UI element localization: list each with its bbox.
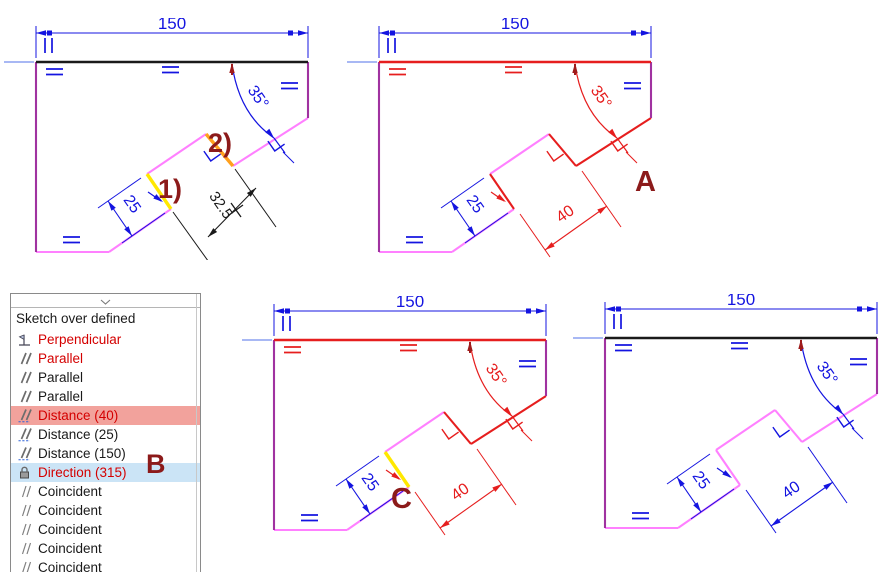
svg-text:25: 25 bbox=[689, 468, 713, 492]
svg-text:2): 2) bbox=[208, 128, 232, 158]
svg-text:35°: 35° bbox=[587, 83, 615, 113]
distance-icon bbox=[16, 408, 32, 423]
svg-text:40: 40 bbox=[448, 480, 472, 504]
constraint-row[interactable]: Coincident bbox=[11, 482, 200, 501]
svg-text:1): 1) bbox=[158, 174, 182, 204]
svg-text:35°: 35° bbox=[244, 83, 272, 113]
plate-outline[interactable] bbox=[36, 62, 308, 252]
constraint-label: Coincident bbox=[38, 503, 102, 518]
svg-text:40: 40 bbox=[779, 478, 803, 502]
plate-outline[interactable] bbox=[605, 338, 877, 528]
sketch-A-drawing: 15035°2540A bbox=[343, 18, 667, 260]
parallel-icon bbox=[16, 370, 32, 385]
svg-text:150: 150 bbox=[158, 18, 186, 33]
distance-icon bbox=[16, 446, 32, 461]
svg-text:150: 150 bbox=[501, 18, 529, 33]
parallel-icon bbox=[16, 351, 32, 366]
svg-text:25: 25 bbox=[358, 470, 382, 494]
constraint-label: Coincident bbox=[38, 541, 102, 556]
svg-text:150: 150 bbox=[727, 294, 755, 309]
constraint-label: Direction (315) bbox=[38, 465, 127, 480]
dimension-angle[interactable]: 35° bbox=[467, 341, 523, 431]
constraint-row[interactable]: Distance (40) bbox=[11, 406, 200, 425]
sketch-D-drawing: 15035°2540 bbox=[569, 294, 889, 536]
dimension-width[interactable]: 150 bbox=[605, 294, 877, 334]
constraint-list: PerpendicularParallelParallelParallelDis… bbox=[11, 330, 200, 572]
constraint-glyphs[interactable] bbox=[45, 38, 298, 243]
constraint-panel: Sketch over defined PerpendicularParalle… bbox=[10, 293, 201, 572]
callout-labels: A bbox=[635, 166, 656, 198]
constraint-glyphs[interactable] bbox=[614, 314, 867, 519]
dimension-width[interactable]: 150 bbox=[274, 296, 546, 336]
constraint-row[interactable]: Parallel bbox=[11, 349, 200, 368]
svg-text:A: A bbox=[635, 166, 656, 198]
svg-text:25: 25 bbox=[120, 192, 144, 216]
constraint-row[interactable]: Coincident bbox=[11, 501, 200, 520]
dimension-width[interactable]: 150 bbox=[379, 18, 651, 58]
constraint-row[interactable]: Distance (150) bbox=[11, 444, 200, 463]
callout-label-b: B bbox=[146, 449, 166, 480]
dimension-step[interactable]: 25 bbox=[667, 454, 734, 519]
svg-text:C: C bbox=[391, 483, 412, 515]
svg-text:150: 150 bbox=[396, 296, 424, 311]
perpendicular-icon bbox=[16, 332, 32, 347]
svg-text:25: 25 bbox=[463, 192, 487, 216]
constraint-label: Coincident bbox=[38, 522, 102, 537]
constraint-row[interactable]: Distance (25) bbox=[11, 425, 200, 444]
dimension-width[interactable]: 150 bbox=[36, 18, 308, 58]
dimension-length[interactable]: 40 bbox=[520, 171, 621, 257]
panel-collapse-bar[interactable] bbox=[11, 294, 200, 308]
svg-text:40: 40 bbox=[553, 202, 577, 226]
sketch-A: 15035°2540A bbox=[343, 18, 667, 265]
constraint-label: Coincident bbox=[38, 560, 102, 572]
callout-labels: C bbox=[391, 483, 412, 515]
constraint-row[interactable]: Parallel bbox=[11, 387, 200, 406]
parallel-icon bbox=[16, 389, 32, 404]
constraint-label: Perpendicular bbox=[38, 332, 121, 347]
constraint-label: Distance (40) bbox=[38, 408, 118, 423]
coincident-icon bbox=[16, 503, 32, 518]
constraint-label: Parallel bbox=[38, 351, 83, 366]
constraint-label: Distance (150) bbox=[38, 446, 126, 461]
sketch-C-drawing: 15035°2540C bbox=[238, 296, 562, 538]
constraint-glyphs[interactable] bbox=[388, 38, 641, 243]
dimension-angle[interactable]: 35° bbox=[572, 63, 628, 153]
svg-text:32.5: 32.5 bbox=[205, 189, 236, 223]
sketch-top-left-drawing: 15035°2532.51)2) bbox=[0, 18, 324, 260]
sketch-C: 15035°2540C bbox=[238, 296, 562, 543]
dimension-reference[interactable]: 32.5 bbox=[173, 169, 276, 260]
constraint-label: Parallel bbox=[38, 389, 83, 404]
constraint-row[interactable]: Coincident bbox=[11, 558, 200, 572]
constraint-row[interactable]: Coincident bbox=[11, 539, 200, 558]
cad-tutorial-screenshot: { "palette": { "dimension_blue": "#1414E… bbox=[0, 0, 889, 571]
dimension-angle[interactable]: 35° bbox=[229, 63, 285, 153]
coincident-icon bbox=[16, 541, 32, 556]
coincident-icon bbox=[16, 522, 32, 537]
constraint-label: Distance (25) bbox=[38, 427, 118, 442]
constraint-row[interactable]: Parallel bbox=[11, 368, 200, 387]
constraint-row[interactable]: Direction (315) bbox=[11, 463, 200, 482]
chevron-down-icon bbox=[100, 293, 111, 308]
distance-icon bbox=[16, 427, 32, 442]
plate-outline[interactable] bbox=[379, 62, 651, 252]
constraint-label: Parallel bbox=[38, 370, 83, 385]
dimension-length[interactable]: 40 bbox=[746, 447, 847, 533]
panel-inner-border bbox=[196, 294, 197, 572]
coincident-icon bbox=[16, 560, 32, 572]
svg-text:35°: 35° bbox=[482, 361, 510, 391]
dimension-length[interactable]: 40 bbox=[415, 449, 516, 535]
panel-status-text: Sketch over defined bbox=[11, 308, 200, 329]
svg-text:35°: 35° bbox=[813, 359, 841, 389]
sketch-D: 15035°2540 bbox=[569, 294, 889, 541]
constraint-row[interactable]: Coincident bbox=[11, 520, 200, 539]
sketch-top-left: 15035°2532.51)2) bbox=[0, 18, 324, 265]
coincident-icon bbox=[16, 484, 32, 499]
dimension-step[interactable]: 25 bbox=[441, 178, 508, 243]
constraint-label: Coincident bbox=[38, 484, 102, 499]
constraint-row[interactable]: Perpendicular bbox=[11, 330, 200, 349]
dimension-angle[interactable]: 35° bbox=[798, 339, 854, 429]
lock-icon bbox=[16, 465, 32, 480]
